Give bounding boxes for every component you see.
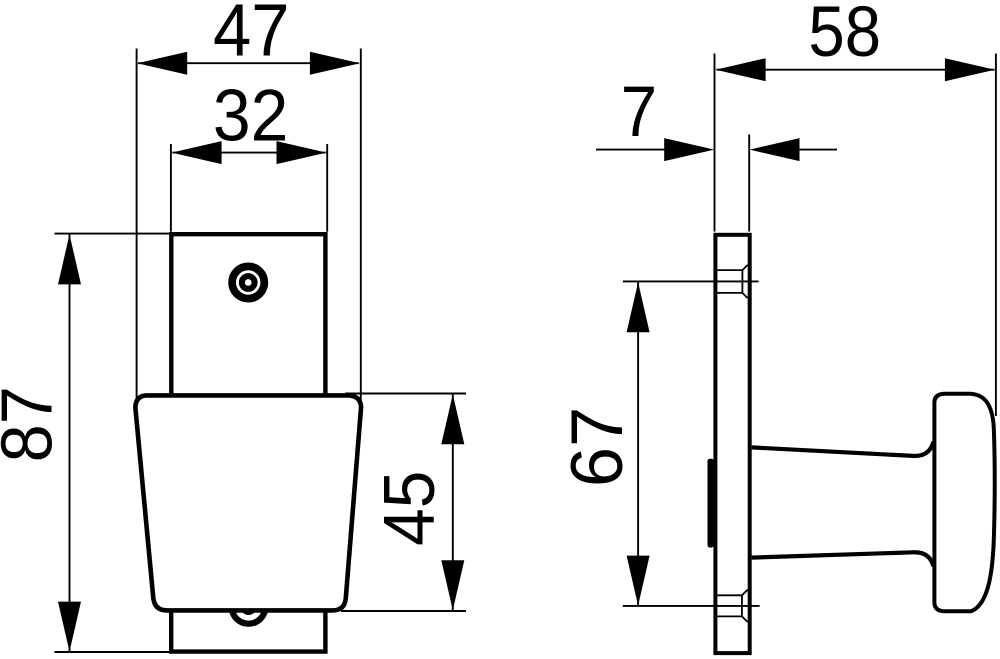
svg-text:67: 67 — [557, 407, 638, 487]
svg-text:58: 58 — [808, 0, 881, 72]
svg-text:7: 7 — [621, 73, 657, 152]
svg-text:87: 87 — [0, 386, 67, 462]
svg-text:45: 45 — [369, 471, 449, 546]
svg-text:47: 47 — [213, 0, 290, 72]
svg-text:32: 32 — [213, 74, 289, 156]
